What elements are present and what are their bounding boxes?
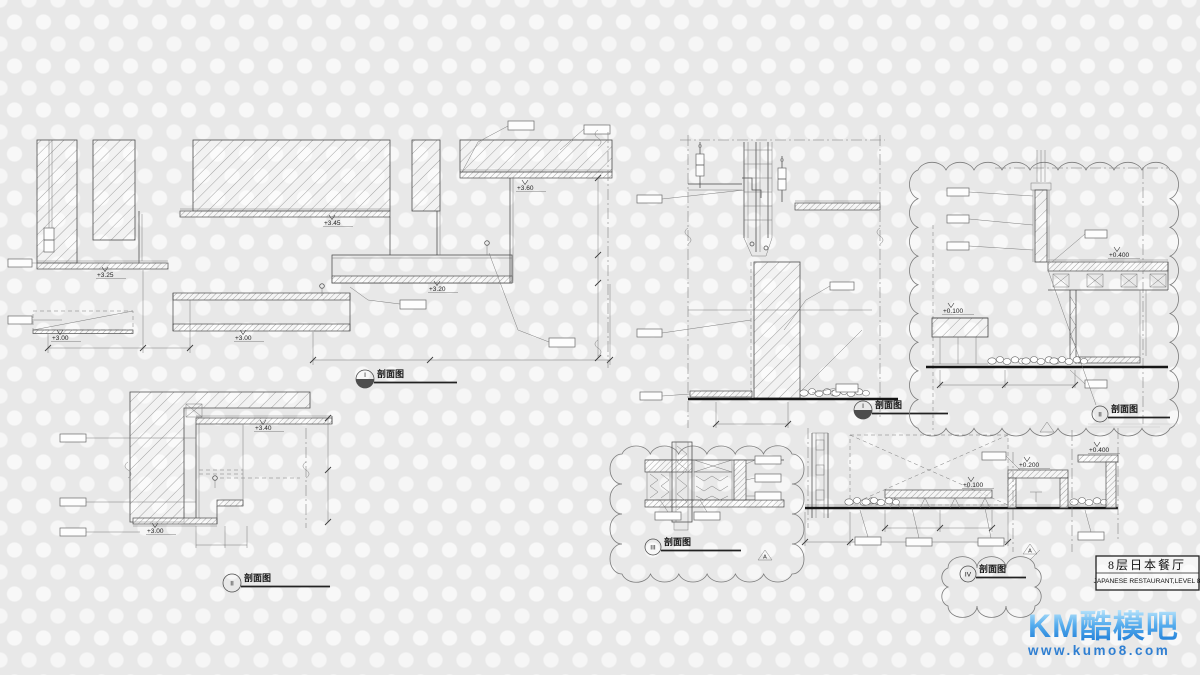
leader-note-box — [836, 384, 858, 392]
detail-section-5: III 剖面图 — [610, 442, 804, 582]
svg-text:+3.25: +3.25 — [97, 272, 114, 279]
slope-marker-a: A — [758, 550, 772, 561]
svg-text:+0.400: +0.400 — [1109, 252, 1129, 259]
level-label: +0.100 — [962, 477, 994, 489]
leader-note-box — [1085, 230, 1107, 238]
section-label-6: IV 剖面图 — [960, 563, 1026, 582]
leader-note-box — [60, 528, 86, 536]
leader-note-box — [640, 392, 662, 400]
leader-note-box — [60, 434, 86, 442]
svg-text:剖面图: 剖面图 — [377, 368, 404, 379]
leader-note-box — [947, 188, 969, 196]
cad-sheet: +3.25 +3.45 +3.60 +3.20 +3.00 +3.00 I 剖面… — [0, 0, 1200, 675]
svg-text:+3.60: +3.60 — [517, 185, 534, 192]
svg-text:+3.00: +3.00 — [235, 335, 252, 342]
svg-text:+3.00: +3.00 — [147, 528, 164, 535]
watermark: KM酷模吧 www.kumo8.com — [1028, 610, 1179, 658]
svg-text:II: II — [1098, 412, 1102, 419]
svg-text:+0.400: +0.400 — [1089, 447, 1109, 454]
level-label: +0.100 — [942, 303, 974, 315]
leader-note-box — [60, 498, 86, 506]
leader-note-box — [549, 338, 575, 347]
svg-text:A: A — [1028, 549, 1032, 555]
svg-text:+3.40: +3.40 — [255, 425, 272, 432]
svg-text:II: II — [230, 581, 234, 588]
level-label: +0.400 — [1088, 442, 1120, 454]
svg-text:剖面图: 剖面图 — [1111, 403, 1138, 414]
leader-note-box — [584, 125, 610, 134]
leader-note-box — [655, 512, 681, 520]
leader-note-box — [637, 195, 662, 203]
detail-section-4: +0.400 +0.100 II 剖面图 — [909, 150, 1178, 436]
leader-note-box — [947, 215, 969, 223]
leader-note-box — [982, 452, 1006, 460]
svg-text:+0.100: +0.100 — [963, 482, 983, 489]
section-label-4: II 剖面图 — [1092, 403, 1170, 422]
level-label: +3.00 — [146, 523, 176, 535]
svg-text:剖面图: 剖面图 — [664, 536, 691, 547]
svg-text:A: A — [763, 555, 767, 561]
level-label: +0.200 — [1018, 457, 1050, 469]
leader-note-box — [830, 282, 854, 290]
leader-note-box — [508, 121, 534, 130]
svg-text:剖面图: 剖面图 — [979, 563, 1006, 574]
leader-note-box — [755, 456, 781, 464]
slope-marker-a: A — [1023, 544, 1037, 555]
leader-note-box — [637, 329, 662, 337]
leader-note-box — [694, 512, 720, 520]
level-label: +0.400 — [1108, 247, 1140, 259]
svg-text:+0.100: +0.100 — [943, 308, 963, 315]
section-label-1: I 剖面图 — [356, 368, 457, 388]
leader-note-box — [8, 316, 32, 324]
section-label-5: III 剖面图 — [645, 536, 741, 555]
svg-text:IV: IV — [965, 572, 972, 579]
title-block: 8层日本餐厅 JAPANESE RESTAURANT,LEVEL 8 — [1094, 556, 1200, 590]
leader-note-box — [755, 492, 781, 500]
leader-note-box — [1078, 532, 1104, 540]
title-en: JAPANESE RESTAURANT,LEVEL 8 — [1094, 578, 1200, 585]
detail-section-3: I 剖面图 — [637, 135, 948, 428]
leader-note-box — [906, 538, 932, 546]
section-label-3: I 剖面图 — [854, 399, 948, 419]
svg-text:+3.45: +3.45 — [324, 220, 341, 227]
svg-text:剖面图: 剖面图 — [875, 399, 902, 410]
svg-text:I: I — [364, 372, 366, 379]
leader-note-box — [947, 242, 969, 250]
svg-text:+0.200: +0.200 — [1019, 462, 1039, 469]
svg-text:III: III — [650, 545, 656, 552]
level-label: +3.00 — [234, 330, 264, 342]
detail-section-1: +3.25 +3.45 +3.60 +3.20 +3.00 +3.00 I 剖面… — [8, 121, 613, 388]
drawing-canvas: +3.25 +3.45 +3.60 +3.20 +3.00 +3.00 I 剖面… — [0, 0, 1200, 675]
svg-text:+3.00: +3.00 — [52, 335, 69, 342]
watermark-brand: KM酷模吧 — [1028, 610, 1179, 642]
section-label-2: II 剖面图 — [223, 572, 330, 592]
leader-note-box — [855, 537, 881, 545]
svg-text:剖面图: 剖面图 — [244, 572, 271, 583]
leader-note-box — [978, 538, 1004, 546]
detail-section-6: +0.100 +0.200 +0.400 A A IV 剖面图 — [758, 428, 1120, 617]
level-label: +3.60 — [516, 180, 546, 192]
detail-section-2: +3.40 +3.00 II 剖面图 — [60, 392, 332, 592]
title-cn: 8层日本餐厅 — [1108, 557, 1186, 572]
leader-note-box — [755, 474, 781, 482]
svg-text:I: I — [862, 403, 864, 410]
svg-text:+3.20: +3.20 — [429, 286, 446, 293]
leader-note-box — [400, 300, 426, 309]
watermark-url: www.kumo8.com — [1028, 644, 1179, 658]
leader-note-box — [8, 259, 32, 267]
